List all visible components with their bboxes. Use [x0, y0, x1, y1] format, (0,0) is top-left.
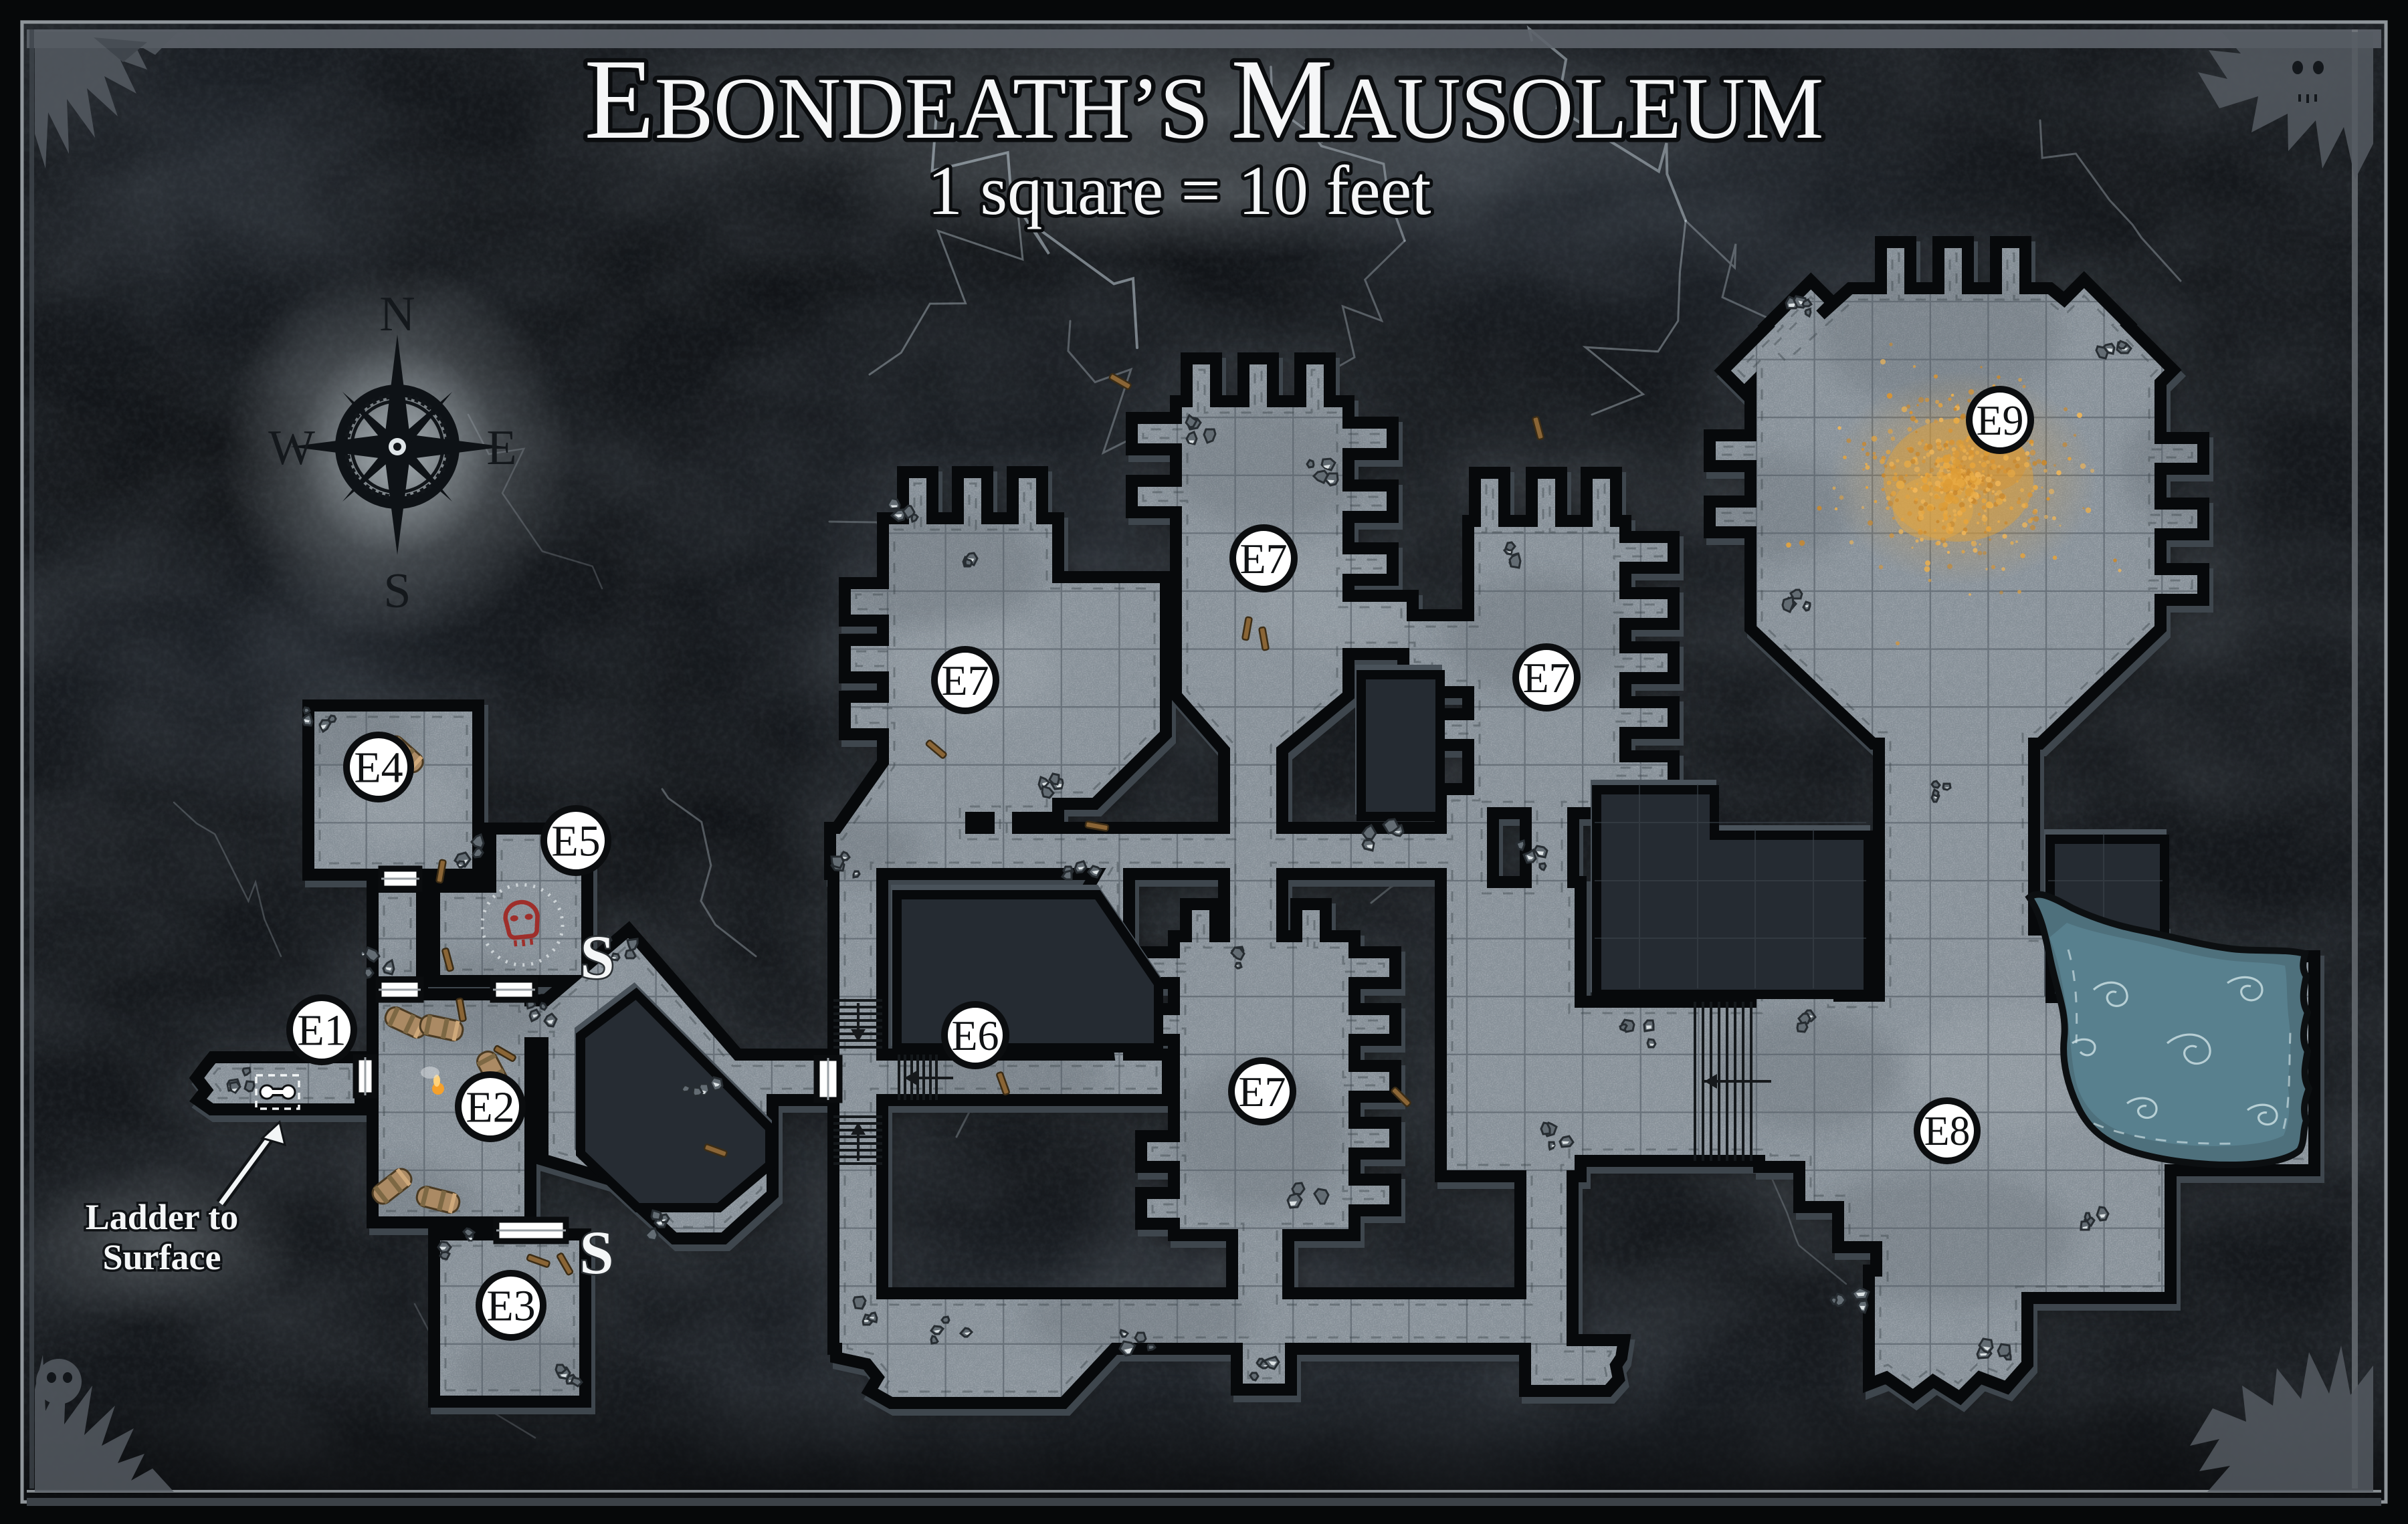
- svg-text:E6: E6: [951, 1012, 999, 1059]
- svg-text:S: S: [579, 1218, 613, 1287]
- svg-text:S: S: [580, 923, 614, 991]
- svg-text:Ladder to: Ladder to: [86, 1197, 239, 1237]
- svg-text:N: N: [379, 287, 415, 342]
- svg-text:E8: E8: [1924, 1109, 1971, 1154]
- svg-text:E: E: [486, 421, 516, 475]
- svg-text:E1: E1: [297, 1006, 346, 1055]
- svg-text:E2: E2: [466, 1083, 514, 1131]
- svg-text:1 square = 10 feet: 1 square = 10 feet: [927, 151, 1431, 229]
- svg-text:E7: E7: [1239, 535, 1287, 582]
- svg-text:E7: E7: [941, 657, 989, 704]
- svg-text:S: S: [383, 564, 411, 619]
- svg-text:E4: E4: [354, 743, 403, 792]
- svg-text:W: W: [268, 421, 315, 475]
- svg-text:E3: E3: [486, 1281, 535, 1330]
- svg-text:Surface: Surface: [103, 1237, 221, 1277]
- svg-text:E5: E5: [551, 817, 600, 865]
- svg-text:E9: E9: [1976, 397, 2023, 444]
- svg-text:E7: E7: [1522, 654, 1570, 701]
- svg-text:E7: E7: [1238, 1068, 1286, 1115]
